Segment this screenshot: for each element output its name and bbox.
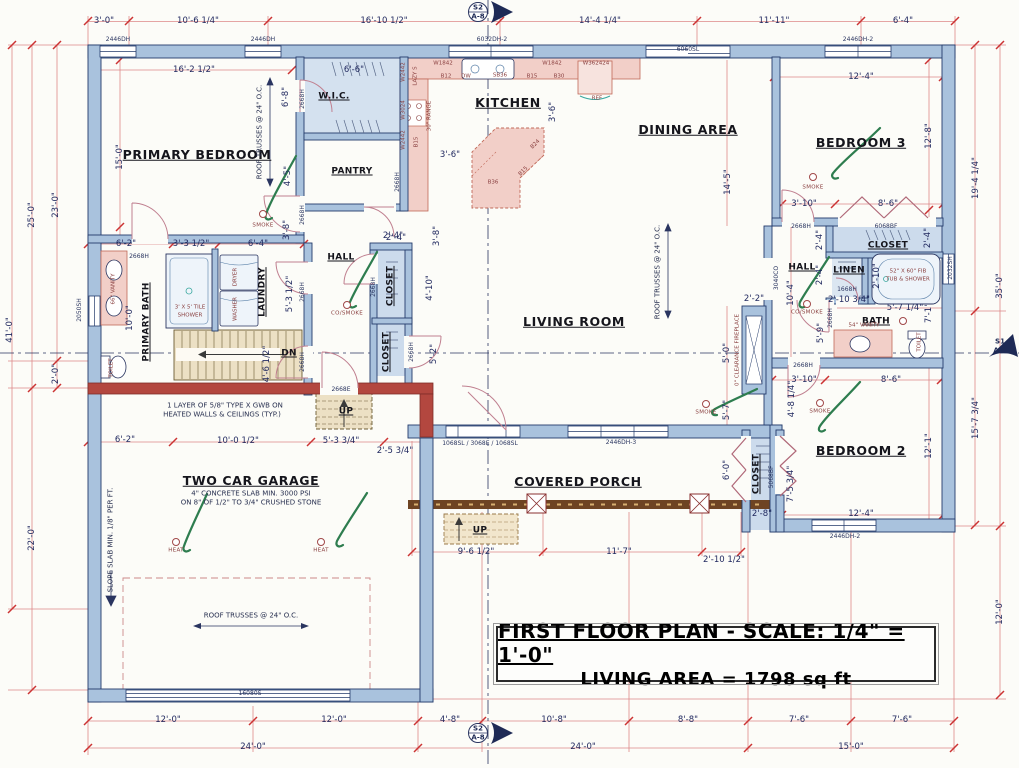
plan-title: FIRST FLOOR PLAN - SCALE: 1/4" = 1'-0" [498,619,934,667]
firewall [88,383,433,437]
living-area-note: LIVING AREA = 1798 sq ft [580,669,851,690]
stairs [174,330,372,429]
kitchen-counters [400,57,640,211]
fireplace [746,316,762,384]
floor-plan-canvas: 3'-0"10'-6 1/4"16'-10 1/2"14'-4 1/4"11'-… [0,0,1019,768]
porch [408,494,770,544]
title-block: FIRST FLOOR PLAN - SCALE: 1/4" = 1'-0" L… [496,626,936,682]
garage-truss-outline [123,578,370,690]
